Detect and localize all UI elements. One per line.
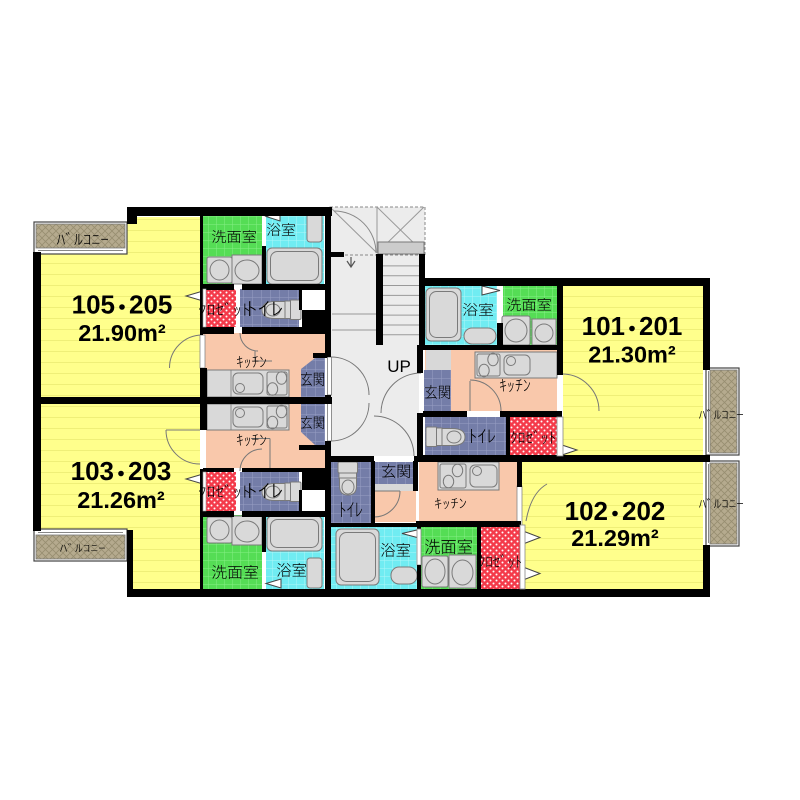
svg-text:105: 105	[72, 290, 115, 320]
svg-text:203: 203	[128, 456, 171, 486]
svg-text:205: 205	[129, 290, 172, 320]
svg-text:21.90m²: 21.90m²	[78, 320, 166, 346]
svg-text:21.26m²: 21.26m²	[77, 487, 165, 513]
svg-text:201: 201	[639, 311, 682, 341]
svg-text:103: 103	[71, 456, 114, 486]
svg-text:101: 101	[582, 311, 625, 341]
svg-text:102: 102	[565, 496, 608, 526]
svg-text:21.30m²: 21.30m²	[588, 342, 676, 368]
svg-text:UP: UP	[387, 357, 411, 376]
svg-text:21.29m²: 21.29m²	[571, 525, 659, 551]
svg-text:202: 202	[622, 496, 665, 526]
